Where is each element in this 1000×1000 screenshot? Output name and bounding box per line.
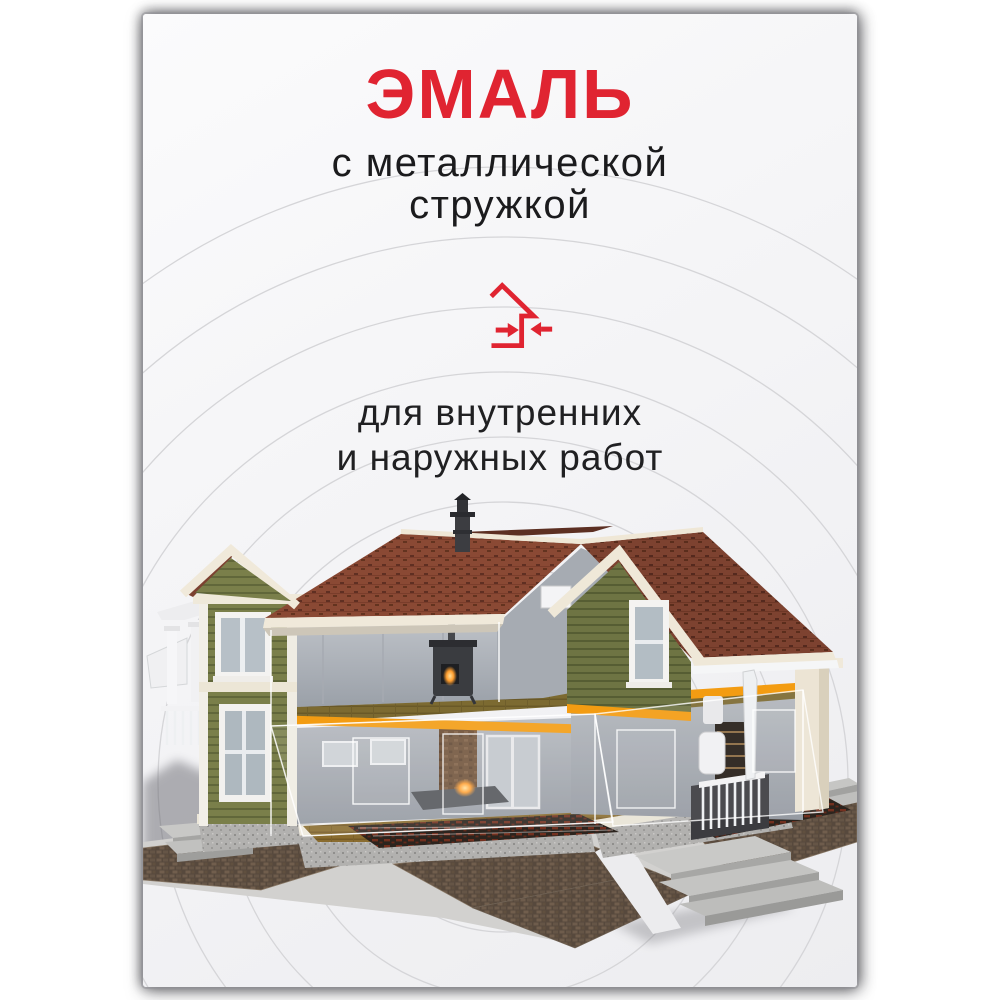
- cutaway-house-illustration: [143, 490, 857, 972]
- product-subtitle: с металлической стружкой: [143, 142, 857, 226]
- product-title: ЭМАЛЬ: [143, 58, 857, 130]
- house-wall-arrows-icon: [480, 280, 554, 352]
- subtitle-line-1: с металлической: [143, 142, 857, 184]
- usage-line-2: и наружных работ: [143, 435, 857, 480]
- interior-exterior-icon-wrap: [143, 280, 857, 350]
- usage-text: для внутренних и наружных работ: [143, 390, 857, 480]
- poster-card: ЭМАЛЬ с металлической стружкой для внутр…: [143, 14, 857, 987]
- subtitle-line-2: стружкой: [143, 184, 857, 226]
- page: { "poster": { "title": "ЭМАЛЬ", "subtitl…: [0, 0, 1000, 1000]
- usage-line-1: для внутренних: [143, 390, 857, 435]
